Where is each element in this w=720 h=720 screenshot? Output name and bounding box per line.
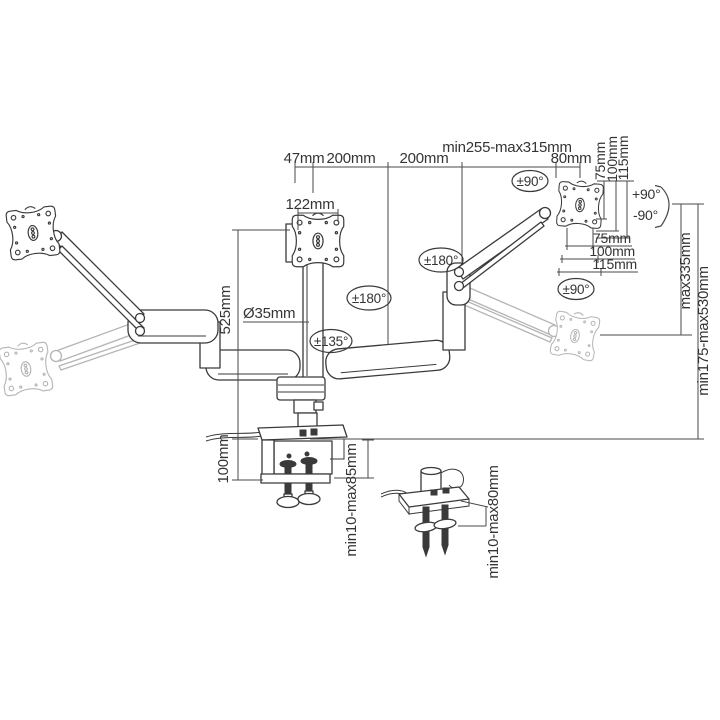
dim-pole-offset: 47mm xyxy=(284,150,325,167)
angle-elbow-swivel-left: ±180° xyxy=(352,291,386,306)
ghost-left-vesa-plate xyxy=(0,340,53,396)
angle-base-swivel: ±135° xyxy=(314,334,348,349)
monitor-arm-dimension-diagram: 47mm 200mm 200mm min255-max315mm 80mm 12… xyxy=(0,0,720,720)
dim-height-range: min175-max530mm xyxy=(695,266,712,396)
angle-badge-base-swivel: ±135° xyxy=(310,330,352,353)
dim-vesa-v-115: 115mm xyxy=(615,136,631,181)
ghost-right-vesa-plate xyxy=(550,309,601,361)
dim-clamp-range: min10-max85mm xyxy=(343,443,360,556)
angle-elbow-swivel-right: ±180° xyxy=(424,253,458,268)
dim-head-offset: 122mm xyxy=(285,196,334,213)
dim-reach-right: 200mm xyxy=(399,150,448,167)
center-vesa-plate xyxy=(292,213,344,267)
angle-tilt-up: +90° xyxy=(632,186,661,202)
diagram-canvas: 47mm 200mm 200mm min255-max315mm 80mm 12… xyxy=(0,0,720,720)
right-vesa-plate xyxy=(556,180,603,229)
ghost-left-arm-lowered xyxy=(0,321,143,396)
dim-end-offset: 80mm xyxy=(551,150,592,167)
dim-grommet-range: min10-max80mm xyxy=(485,465,502,578)
dim-pole-diameter: Ø35mm xyxy=(243,305,295,322)
angle-head-swivel-top: ±90° xyxy=(516,174,543,189)
dim-clamp-height: 100mm xyxy=(215,434,232,483)
grommet-range-dimension xyxy=(458,501,488,526)
grommet-mount xyxy=(381,468,469,557)
right-link-arm xyxy=(325,263,470,380)
angle-badge-head-rotate-right: ±90° xyxy=(558,279,594,300)
right-gas-spring-arm xyxy=(455,208,551,291)
angle-badge-elbow-swivel-right: ±180° xyxy=(419,248,463,272)
angle-tilt-down: -90° xyxy=(633,207,658,223)
angle-head-rotate-right: ±90° xyxy=(562,282,589,297)
dim-pole-height: 525mm xyxy=(217,285,234,334)
dim-reach-left: 200mm xyxy=(326,150,375,167)
left-gas-spring-arm xyxy=(51,231,145,336)
left-vesa-plate xyxy=(5,204,60,261)
dim-vesa-h-115: 115mm xyxy=(592,256,637,272)
dim-raise-max: max335mm xyxy=(677,233,694,310)
angle-badge-head-swivel-top: ±90° xyxy=(512,171,548,192)
angle-badge-elbow-swivel-left: ±180° xyxy=(347,286,391,310)
